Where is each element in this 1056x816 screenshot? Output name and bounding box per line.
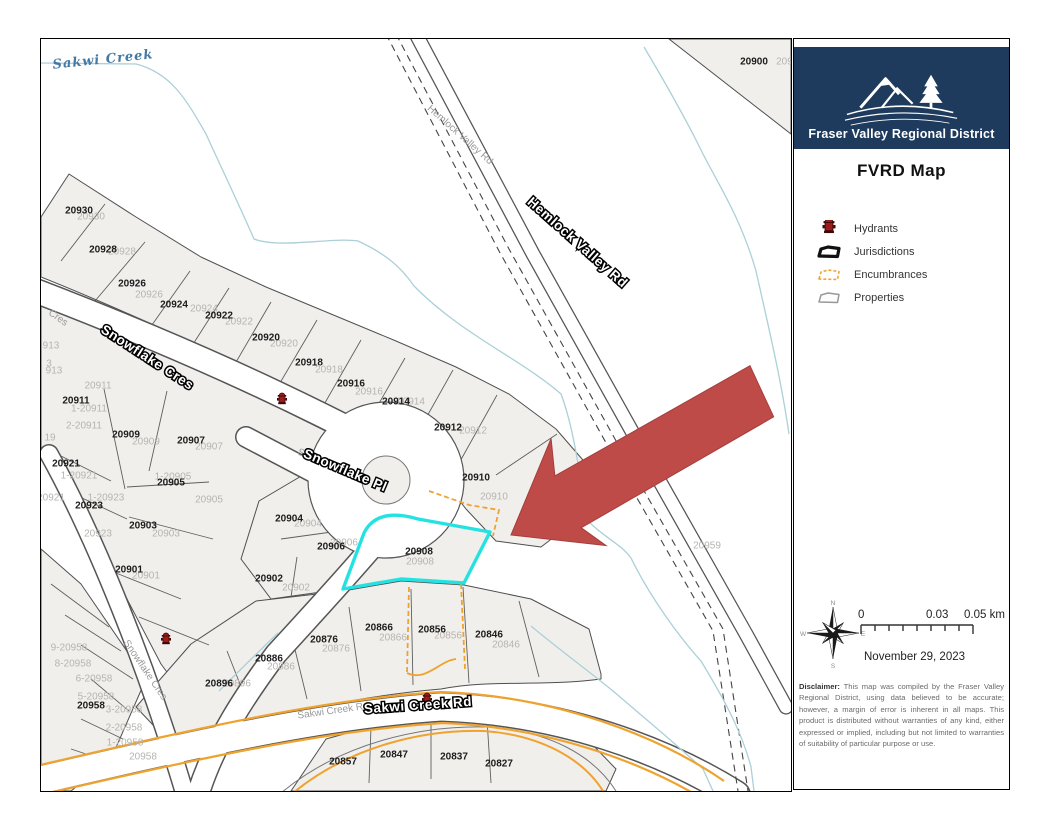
scale-ruler bbox=[860, 624, 992, 636]
legend-item-jurisdictions: Jurisdictions bbox=[816, 240, 927, 263]
parcel-label: 20928 bbox=[89, 245, 117, 256]
parcel-sublabel: 20958 bbox=[129, 752, 157, 763]
scale-start: 0 bbox=[858, 609, 864, 621]
parcel-label: 20909 bbox=[112, 430, 140, 441]
parcel-sublabel: 2-20911 bbox=[66, 421, 102, 432]
parcel-label: 20846 bbox=[475, 630, 503, 641]
parcel-label: 20907 bbox=[177, 436, 205, 447]
parcel-sublabel: 20908 bbox=[406, 557, 434, 568]
map-date: November 29, 2023 bbox=[864, 651, 965, 663]
legend-item-encumbrances: Encumbrances bbox=[816, 263, 927, 286]
parcel-label: 20924 bbox=[160, 300, 188, 311]
properties-icon bbox=[816, 290, 842, 306]
parcel-label: 20922 bbox=[205, 311, 233, 322]
parcel-label: 20908 bbox=[405, 547, 433, 558]
brand-header: Fraser Valley Regional District bbox=[794, 47, 1009, 149]
jurisdictions-icon bbox=[816, 244, 842, 260]
parcel-sublabel: 20959 bbox=[693, 541, 721, 552]
parcel-label: 20866 bbox=[365, 623, 393, 634]
disclaimer-text: Disclaimer: This map was compiled by the… bbox=[799, 681, 1004, 749]
legend-item-hydrants: Hydrants bbox=[816, 217, 927, 240]
parcel-sublabel: 19 bbox=[44, 433, 56, 444]
encumbrances-icon bbox=[816, 267, 842, 283]
parcel-sublabel: 20926 bbox=[135, 290, 163, 301]
parcel-sublabel: 20923 bbox=[84, 529, 112, 540]
map-canvas[interactable]: 2093020928209262092420922209202091820916… bbox=[41, 39, 791, 791]
parcel-label: 20876 bbox=[310, 635, 338, 646]
brand-name: Fraser Valley Regional District bbox=[808, 127, 994, 149]
parcel-label: 20856 bbox=[418, 625, 446, 636]
parcel-label: 20926 bbox=[118, 279, 146, 290]
parcel-label: 20857 bbox=[329, 757, 357, 768]
legend-list: Hydrants Jurisdictions Encumbrances Prop… bbox=[816, 217, 927, 309]
fvrd-logo bbox=[837, 69, 967, 127]
parcel-sublabel: 20950 bbox=[776, 57, 791, 68]
parcel-sublabel: 20911 bbox=[84, 381, 112, 392]
parcel-sublabel: 20866 bbox=[379, 633, 407, 644]
scale-mid: 0.03 bbox=[926, 609, 948, 621]
legend-panel: Fraser Valley Regional District FVRD Map… bbox=[793, 38, 1010, 790]
parcel-label: 20901 bbox=[115, 565, 143, 576]
parcel-label: 20930 bbox=[65, 206, 93, 217]
parcel-label: 20900 bbox=[740, 57, 768, 68]
parcel-sublabel: 9-20958 bbox=[51, 643, 88, 654]
parcel-sublabel: 20902 bbox=[282, 583, 310, 594]
parcel-label: 20920 bbox=[252, 333, 280, 344]
map-viewport[interactable]: 2093020928209262092420922209202091820916… bbox=[40, 38, 792, 792]
compass-rose: N E S W bbox=[800, 595, 866, 676]
parcel-label: 20916 bbox=[337, 379, 365, 390]
parcel-sublabel: 8-20958 bbox=[55, 659, 92, 670]
parcel-label: 20847 bbox=[380, 750, 408, 761]
parcel-sublabel: 3-20958 bbox=[106, 705, 143, 716]
parcel-label: 20914 bbox=[382, 397, 410, 408]
parcel-sublabel: 20905 bbox=[195, 495, 223, 506]
parcel-label: 20886 bbox=[255, 654, 283, 665]
parcel-label: 20918 bbox=[295, 358, 323, 369]
parcel-label: 20837 bbox=[440, 752, 468, 763]
parcel-sublabel: 2-20958 bbox=[106, 723, 143, 734]
parcel-sublabel: 20910 bbox=[480, 492, 508, 503]
parcel-sublabel: 20846 bbox=[492, 640, 520, 651]
parcel-label: 20958 bbox=[77, 701, 105, 712]
parcel-sublabel: 1-20958 bbox=[107, 738, 144, 749]
parcel-label: 20921 bbox=[52, 459, 80, 470]
parcel-label: 20910 bbox=[462, 473, 490, 484]
parcel-sublabel: 6-20958 bbox=[76, 674, 113, 685]
parcel-label: 20911 bbox=[62, 396, 90, 407]
scale-bar: 0 0.03 0.05 km bbox=[860, 609, 992, 641]
legend-item-properties: Properties bbox=[816, 286, 927, 309]
parcel-sublabel: 20912 bbox=[459, 426, 487, 437]
parcel-label: 20923 bbox=[75, 501, 103, 512]
parcel-label: 20906 bbox=[317, 542, 345, 553]
svg-text:W: W bbox=[800, 631, 807, 638]
parcel-sublabel: 913 bbox=[46, 366, 63, 377]
hydrant-icon bbox=[816, 220, 842, 238]
parcel-label: 20905 bbox=[157, 478, 185, 489]
parcel-sublabel: 20921 bbox=[41, 493, 65, 504]
scale-end: 0.05 km bbox=[964, 609, 1005, 621]
parcel-sublabel: 1-20921 bbox=[61, 471, 98, 482]
parcel-sublabel: 913 bbox=[43, 341, 60, 352]
parcel-label: 20896 bbox=[205, 679, 233, 690]
parcel-label: 20912 bbox=[434, 423, 462, 434]
svg-text:S: S bbox=[831, 663, 836, 670]
parcel-label: 20902 bbox=[255, 574, 283, 585]
parcel-label: 20903 bbox=[129, 521, 157, 532]
parcel-label: 20827 bbox=[485, 759, 513, 770]
map-title: FVRD Map bbox=[794, 161, 1009, 181]
svg-text:N: N bbox=[831, 600, 836, 607]
tree-glyph bbox=[919, 75, 942, 109]
parcel-label: 20904 bbox=[275, 514, 303, 525]
